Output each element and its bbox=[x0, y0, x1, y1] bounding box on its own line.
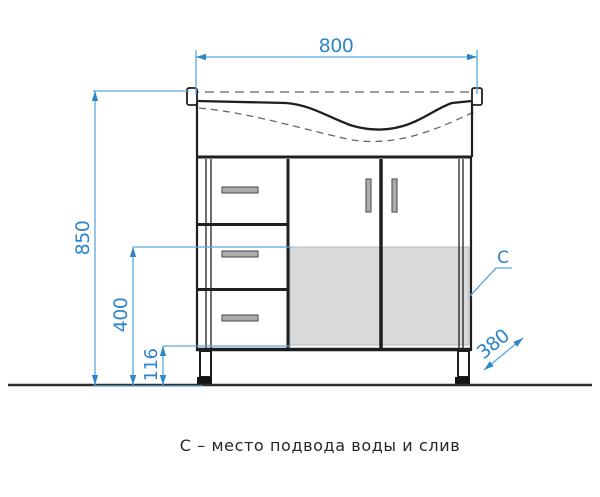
left-leg bbox=[200, 351, 211, 377]
arrow-up-icon bbox=[92, 91, 98, 101]
drawer-handle bbox=[222, 251, 258, 257]
dimension-depth: 380 bbox=[473, 325, 523, 370]
dimension-width-value: 800 bbox=[319, 35, 354, 57]
sink-top bbox=[187, 88, 482, 157]
arrow-up-icon bbox=[130, 247, 136, 257]
left-side-panel-lines bbox=[206, 159, 211, 349]
bowl-front-curve bbox=[197, 101, 472, 130]
right-leg bbox=[458, 351, 469, 377]
dimension-height: 850 bbox=[72, 91, 203, 386]
dimension-height-value: 850 bbox=[72, 221, 94, 256]
dimension-plinth: 116 bbox=[141, 346, 291, 385]
dimension-plinth-value: 116 bbox=[141, 349, 162, 382]
zone-label: C bbox=[497, 248, 509, 268]
dimension-plinth-lines bbox=[163, 346, 291, 385]
drawing-caption: С – место подвода воды и слив bbox=[40, 436, 600, 455]
drawing-svg: 800 850 400 116 380 bbox=[0, 0, 600, 497]
dimension-height-lines bbox=[93, 91, 203, 386]
door-handle bbox=[392, 179, 397, 212]
sink-sides bbox=[197, 103, 472, 157]
vanity-dimension-drawing: 800 850 400 116 380 bbox=[0, 0, 600, 497]
drawer-handle bbox=[222, 315, 258, 321]
zone-callout: C bbox=[469, 248, 512, 297]
zone-leader-line bbox=[469, 268, 512, 297]
door-handle bbox=[366, 179, 371, 212]
legs bbox=[197, 351, 470, 385]
dimension-depth-value: 380 bbox=[473, 325, 514, 364]
arrow-down-icon bbox=[130, 375, 136, 385]
drawer-handle bbox=[222, 187, 258, 193]
arrow-down-icon bbox=[92, 375, 98, 385]
arrow-right-icon bbox=[467, 54, 477, 60]
arrow-left-icon bbox=[196, 54, 206, 60]
dimension-zone-height-value: 400 bbox=[110, 298, 132, 333]
dimension-width: 800 bbox=[196, 35, 477, 94]
